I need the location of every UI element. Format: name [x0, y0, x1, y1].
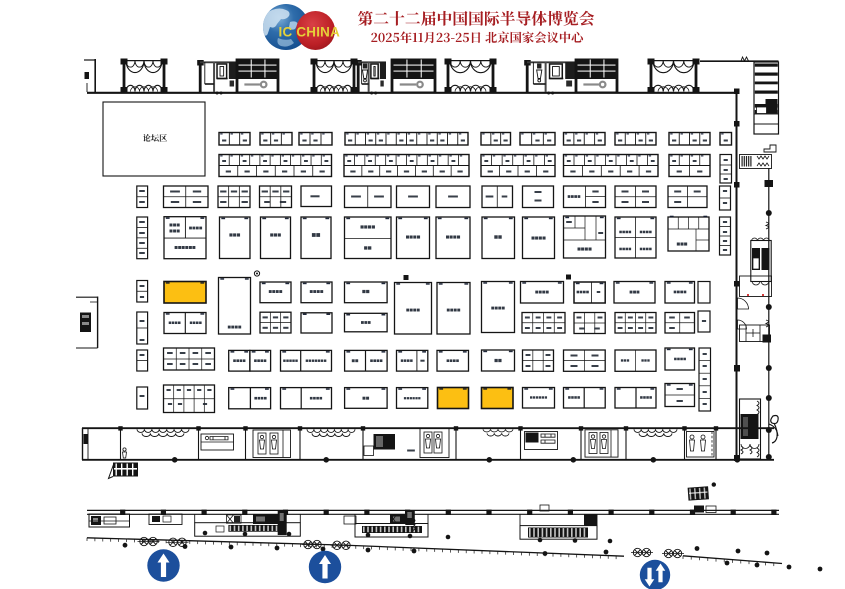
svg-text:IC CHINA: IC CHINA [279, 24, 341, 39]
